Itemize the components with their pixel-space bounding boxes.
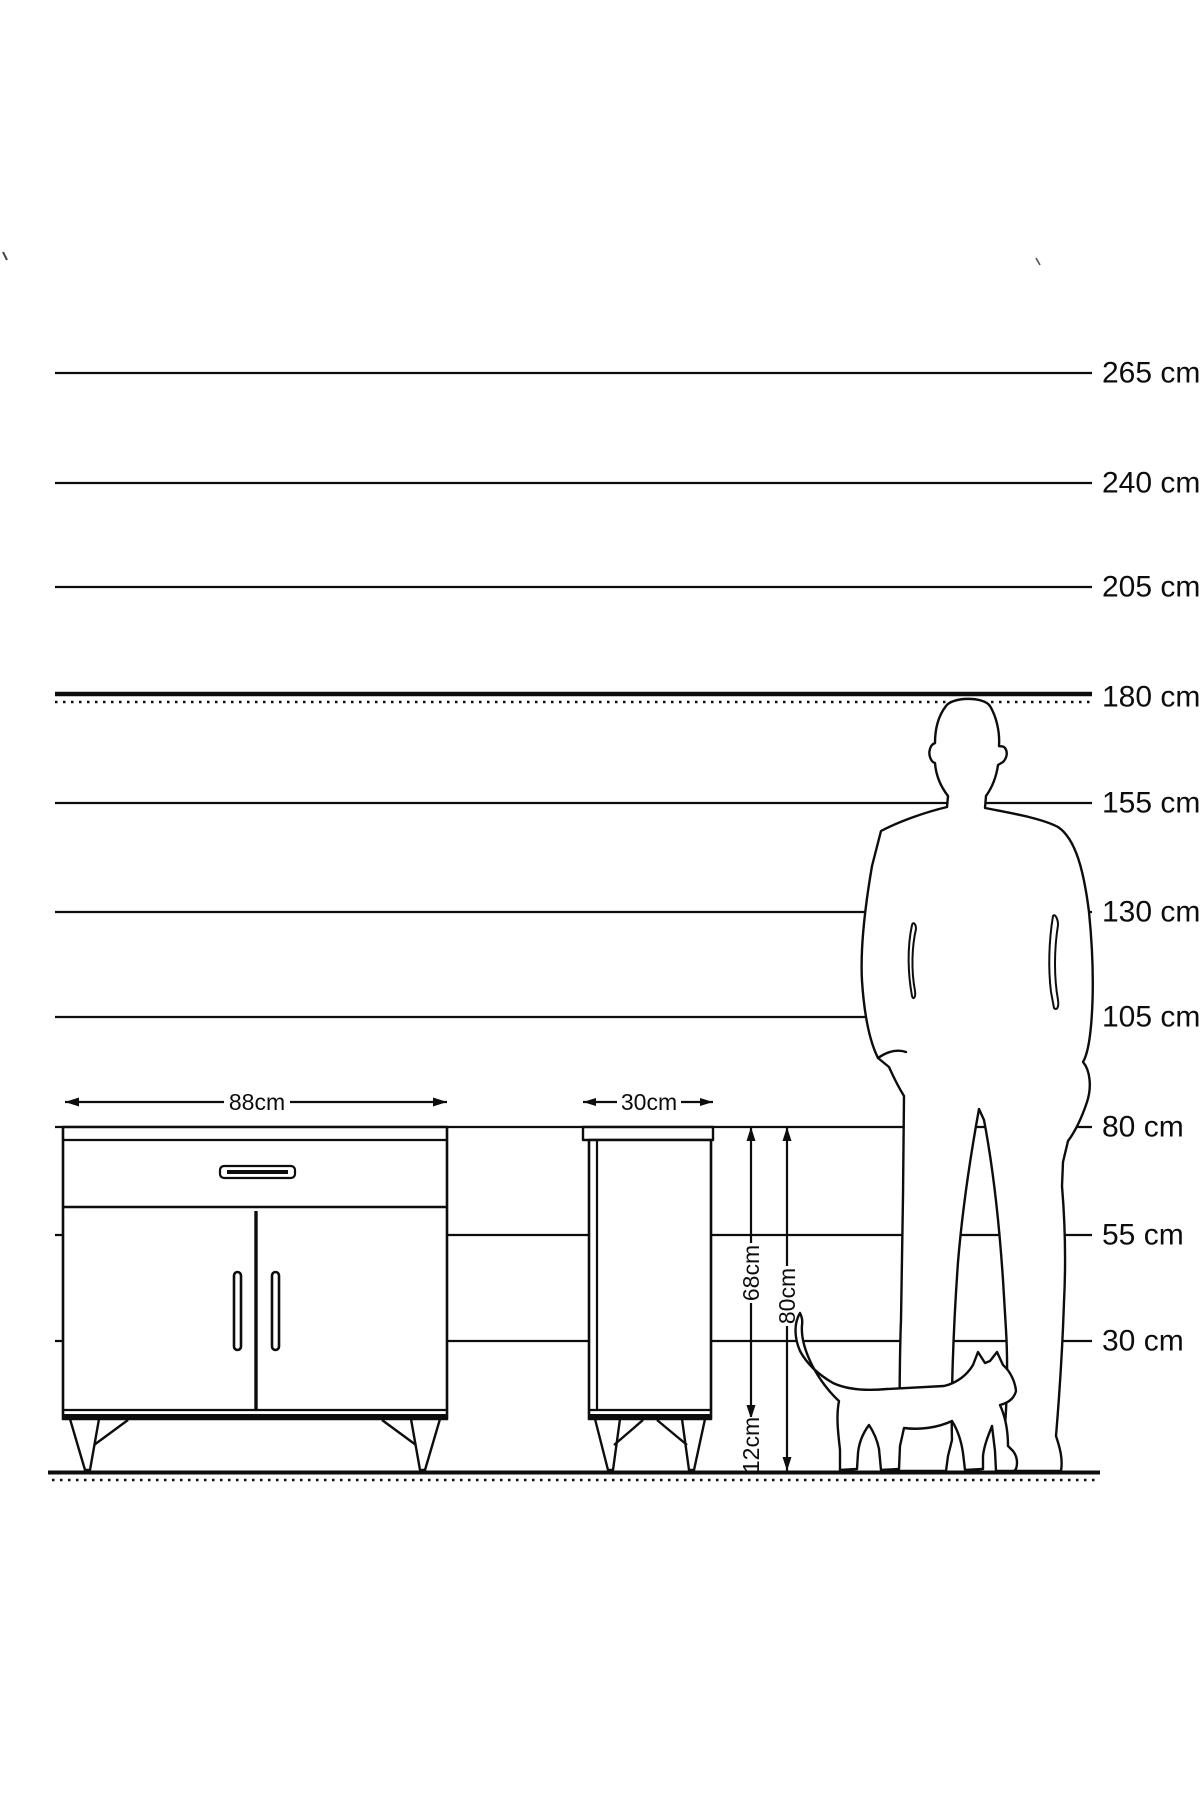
furniture-dimension-diagram: 265 cm 240 cm 205 cm 180 cm 155 cm 130 c… bbox=[0, 0, 1200, 1800]
width-dim-label: 88cm bbox=[229, 1089, 285, 1115]
cabinet-side-view bbox=[583, 1127, 713, 1470]
cabinet-front-view bbox=[63, 1127, 447, 1470]
diagram-svg: 265 cm 240 cm 205 cm 180 cm 155 cm 130 c… bbox=[0, 0, 1200, 1800]
cabinet-side-body bbox=[589, 1140, 711, 1419]
height-label-265: 265 cm bbox=[1102, 357, 1200, 390]
right-door-handle bbox=[272, 1272, 279, 1350]
height-label-240: 240 cm bbox=[1102, 467, 1200, 500]
body-height-dim-label: 68cm bbox=[738, 1245, 764, 1301]
height-label-105: 105 cm bbox=[1102, 1001, 1200, 1034]
height-label-205: 205 cm bbox=[1102, 571, 1200, 604]
leg-height-dim-label: 12cm bbox=[738, 1417, 764, 1473]
depth-dim-label: 30cm bbox=[621, 1089, 677, 1115]
cabinet-side-top-board bbox=[583, 1127, 713, 1140]
height-label-55: 55 cm bbox=[1102, 1219, 1184, 1252]
height-label-155: 155 cm bbox=[1102, 787, 1200, 820]
height-label-130: 130 cm bbox=[1102, 896, 1200, 929]
left-door-handle bbox=[234, 1272, 241, 1350]
total-height-dim-label: 80cm bbox=[774, 1268, 800, 1324]
height-label-180: 180 cm bbox=[1102, 681, 1200, 714]
height-label-30: 30 cm bbox=[1102, 1325, 1184, 1358]
height-label-80: 80 cm bbox=[1102, 1111, 1184, 1144]
